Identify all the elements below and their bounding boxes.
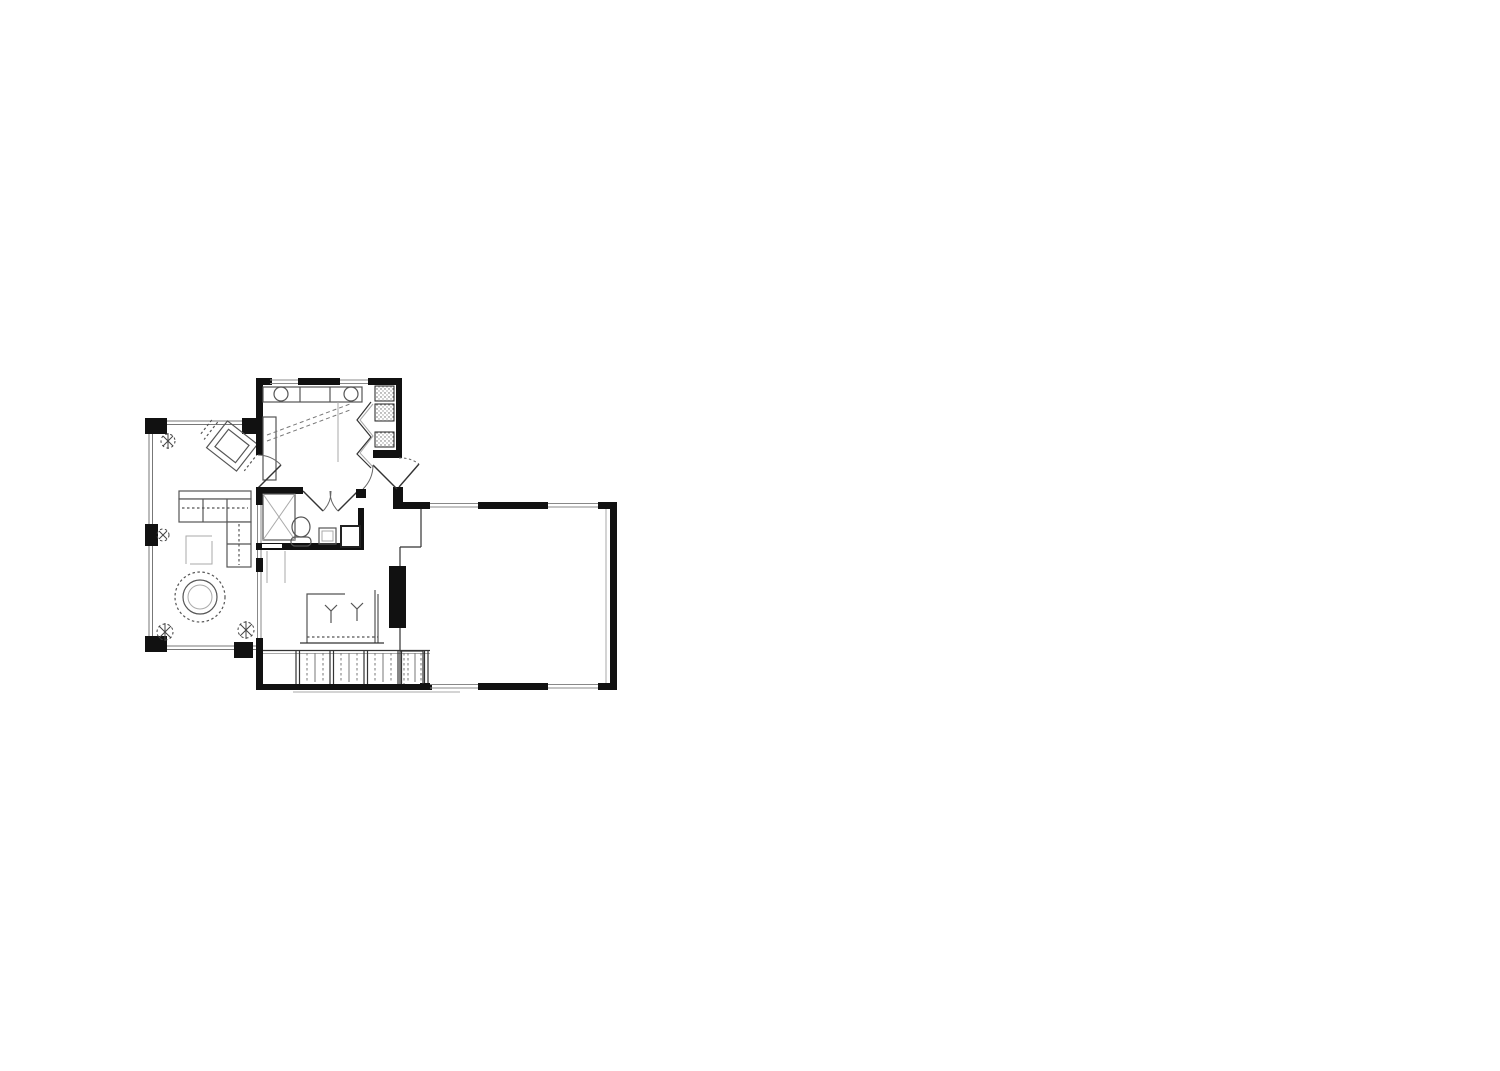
closet	[263, 494, 295, 540]
bar-stool-icon	[325, 605, 337, 623]
bathroom	[256, 487, 366, 550]
kitchen	[263, 387, 362, 480]
shower-unit	[341, 526, 360, 547]
garage-hall-door	[399, 458, 419, 487]
bathroom-door	[303, 491, 331, 511]
window	[548, 504, 598, 508]
living-area	[263, 551, 430, 654]
toilet-icon	[291, 517, 311, 546]
plant-icon	[157, 529, 169, 541]
deck	[145, 413, 262, 658]
side-counter	[263, 417, 276, 480]
window	[548, 685, 598, 689]
window	[430, 504, 478, 508]
garage-closet	[400, 651, 423, 684]
pantry-shelves	[375, 386, 394, 447]
plant-icon	[161, 433, 175, 449]
plant-icon	[238, 621, 254, 639]
window	[270, 380, 298, 384]
dining-table	[175, 572, 225, 622]
window	[430, 685, 478, 689]
window	[258, 505, 262, 558]
floor-plan-canvas	[0, 0, 1500, 1071]
sink-icon	[319, 528, 336, 544]
floor-plan-page	[0, 0, 1500, 1071]
kitchen-counter	[263, 387, 362, 402]
bifold-doors	[357, 402, 373, 468]
window	[340, 380, 368, 384]
bar-counter	[300, 590, 384, 643]
plant-icon	[157, 623, 173, 641]
sectional-sofa	[179, 491, 251, 567]
bar-stool-icon	[351, 603, 363, 621]
coffee-table	[186, 536, 212, 564]
bathroom-door-2	[330, 491, 358, 511]
window	[258, 572, 262, 638]
wall-niche	[262, 544, 282, 548]
hall-door	[363, 465, 397, 489]
fireplace	[389, 566, 406, 628]
